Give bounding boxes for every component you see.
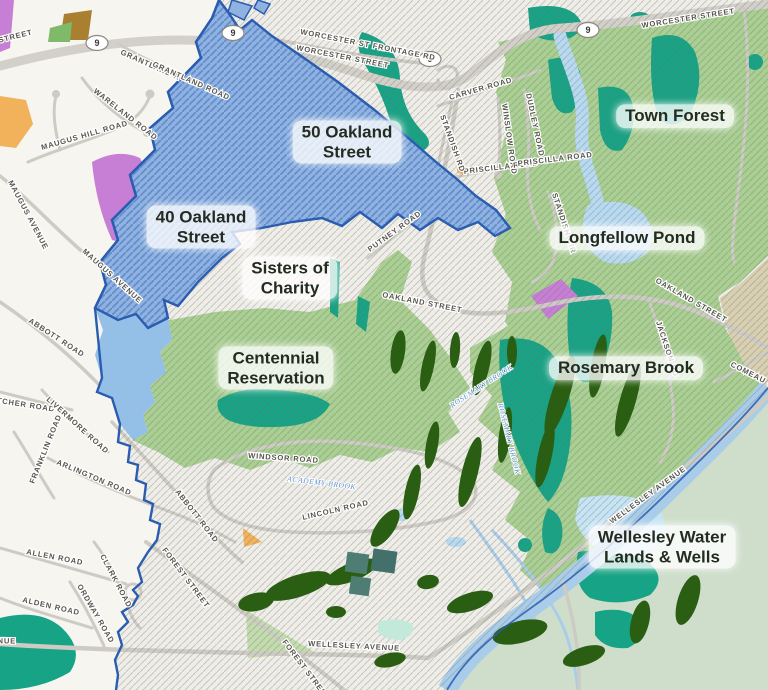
- area-label-centennial-reservation: Centennial Reservation: [218, 346, 333, 389]
- route-number: 9: [230, 28, 235, 38]
- area-label-town-forest: Town Forest: [616, 104, 734, 128]
- route-number: 9: [94, 38, 99, 48]
- area-label-50-oakland-street: 50 Oakland Street: [293, 120, 402, 163]
- route-number: 9: [585, 25, 590, 35]
- map-canvas[interactable]: 9 9 9 9 WASHINGTON STREET WORCESTER ST F…: [0, 0, 768, 690]
- area-label-longfellow-pond: Longfellow Pond: [550, 226, 705, 250]
- street-label-wellesley-avenue-west: WELLESLEY AVENUE: [0, 635, 16, 646]
- area-label-rosemary-brook: Rosemary Brook: [549, 356, 703, 380]
- area-label-sisters-of-charity: Sisters of Charity: [242, 256, 337, 299]
- area-label-40-oakland-street: 40 Oakland Street: [147, 205, 256, 248]
- area-label-wellesley-water: Wellesley Water Lands & Wells: [589, 525, 736, 568]
